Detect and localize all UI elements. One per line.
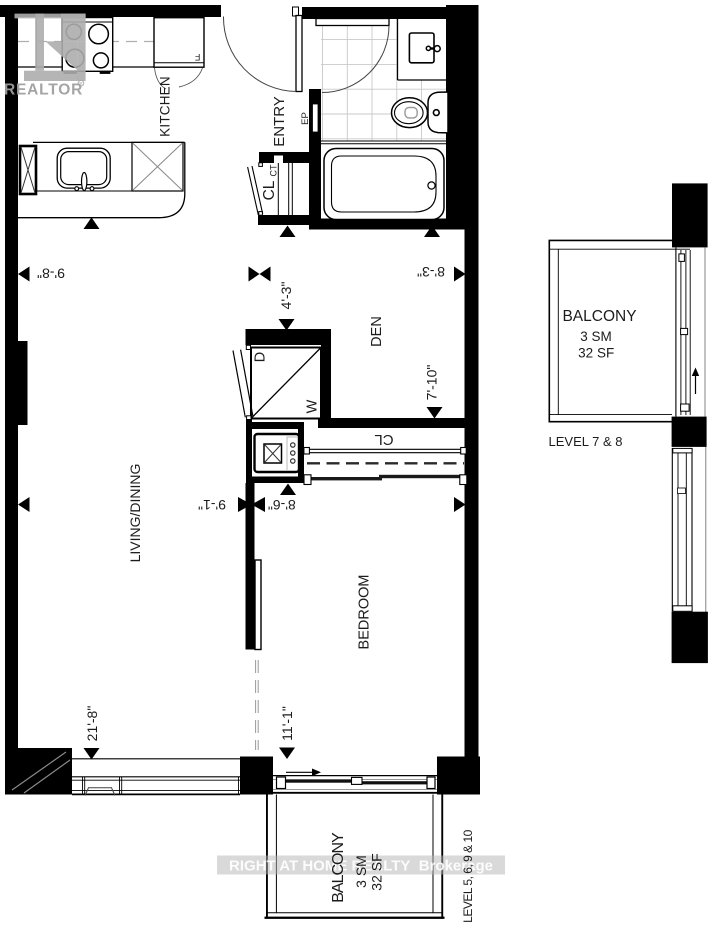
svg-text:BALCONY: BALCONY [330, 832, 347, 903]
svg-text:CL: CL [261, 180, 278, 200]
svg-text:8'-6": 8'-6" [268, 497, 296, 513]
svg-text:4'-3": 4'-3" [278, 282, 294, 310]
svg-text:32 SF: 32 SF [369, 853, 385, 890]
svg-text:W: W [305, 399, 321, 413]
svg-text:9'-1": 9'-1" [198, 497, 226, 513]
svg-text:11'-1": 11'-1" [279, 706, 295, 741]
svg-text:BALCONY: BALCONY [562, 308, 636, 325]
svg-text:32 SF: 32 SF [578, 346, 614, 361]
svg-text:REALTOR: REALTOR [4, 82, 83, 99]
svg-text:LEVEL 5, 6, 9 & 10: LEVEL 5, 6, 9 & 10 [461, 829, 475, 922]
svg-text:KITCHEN: KITCHEN [158, 76, 173, 137]
svg-text:LIVING/DINING: LIVING/DINING [127, 464, 143, 563]
svg-text:3 SM: 3 SM [353, 855, 369, 888]
svg-text:21'-8": 21'-8" [84, 706, 100, 742]
svg-text:7'-10": 7'-10" [424, 365, 440, 401]
svg-text:LEVEL 7 & 8: LEVEL 7 & 8 [549, 434, 623, 449]
svg-text:CL: CL [374, 431, 393, 448]
svg-text:F: F [194, 52, 200, 62]
svg-text:DEN: DEN [369, 316, 385, 347]
svg-text:BEDROOM: BEDROOM [357, 575, 373, 650]
svg-text:8'-3": 8'-3" [417, 264, 445, 280]
svg-text:ENTRY: ENTRY [271, 96, 288, 147]
svg-text:D: D [253, 352, 269, 362]
svg-text:3 SM: 3 SM [580, 329, 612, 344]
svg-text:EP: EP [300, 112, 311, 125]
svg-text:9'-8": 9'-8" [37, 266, 65, 282]
svg-text:CT: CT [269, 164, 279, 176]
